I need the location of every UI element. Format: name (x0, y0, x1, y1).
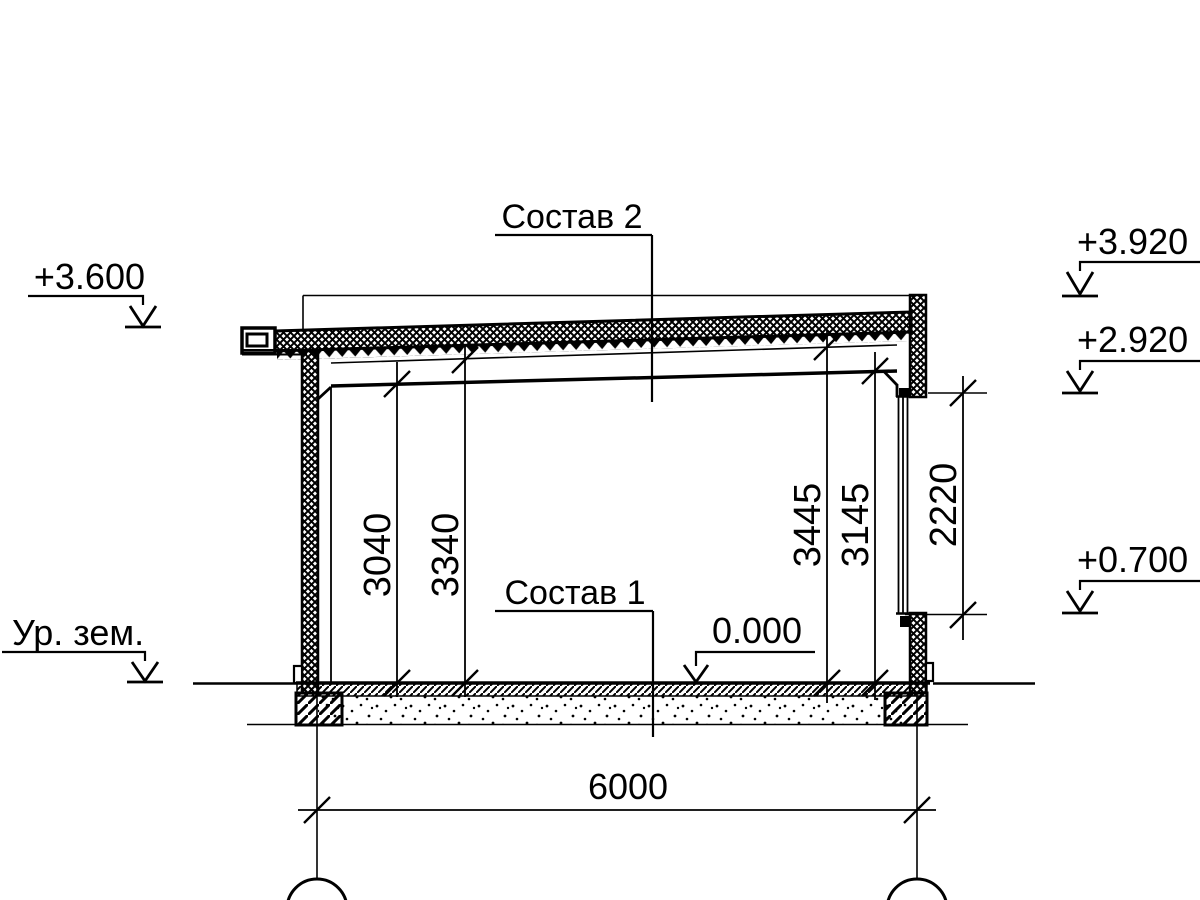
elevation-roof-eave-text: +3.600 (34, 256, 145, 297)
left-wall (294, 351, 331, 693)
building-section-drawing: 6000 3040 3340 3445 3145 2220 +3.600 (0, 0, 1200, 900)
right-wall-above-window (910, 295, 926, 397)
dim-3040-text: 3040 (357, 513, 399, 598)
left-ceiling-chamfer (318, 387, 331, 399)
elevation-window-sill-text: +0.700 (1077, 539, 1188, 580)
dim-3445-text: 3445 (787, 483, 829, 568)
label-composition-1: Состав 1 (505, 574, 646, 612)
dim-2220-text: 2220 (923, 463, 965, 548)
elevation-floor-zero (684, 652, 815, 682)
axis-circle-left (287, 879, 347, 900)
elevation-window-head (1062, 361, 1200, 393)
left-wall-section (302, 351, 318, 693)
eave-gutter-profile (247, 334, 267, 346)
right-ceiling-chamfer (884, 372, 897, 386)
dim-3145-text: 3145 (835, 483, 877, 568)
window-sill-block (900, 616, 910, 627)
elevation-window-head-text: +2.920 (1077, 319, 1188, 360)
elevation-window-sill (1062, 581, 1200, 613)
right-plinth-step (926, 663, 933, 681)
floor-and-base (193, 683, 1035, 725)
foundation-left (296, 693, 342, 725)
ground-level-text: Ур. зем. (12, 612, 144, 653)
window-lintel (899, 388, 910, 396)
base-layer (318, 696, 908, 725)
dim-6000-text: 6000 (588, 766, 668, 807)
foundation-right (885, 693, 927, 725)
axis-circle-right (887, 879, 947, 900)
roof-assembly (242, 296, 911, 361)
elevation-parapet-top-text: +3.920 (1077, 221, 1188, 262)
ceiling-beam-line (331, 371, 897, 386)
elevation-roof-eave (28, 296, 161, 327)
right-wall-below-window (910, 613, 926, 693)
dim-3340-text: 3340 (425, 513, 467, 598)
elevation-parapet-top (1062, 262, 1200, 296)
elevation-ground-level (2, 652, 163, 682)
label-composition-2: Состав 2 (502, 198, 643, 236)
section-svg: 6000 3040 3340 3445 3145 2220 +3.600 (0, 0, 1200, 900)
left-plinth-step (294, 666, 302, 683)
elevation-floor-zero-text: 0.000 (712, 610, 802, 651)
window (896, 388, 910, 627)
